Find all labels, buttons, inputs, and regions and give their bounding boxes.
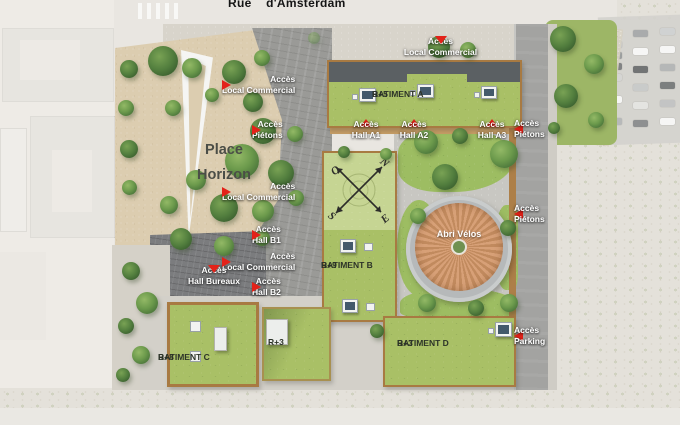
building-b-roof-lawn <box>324 230 395 320</box>
car <box>633 102 648 109</box>
car <box>633 120 648 127</box>
bike-shelter-label: Abri Vélos <box>412 229 506 239</box>
tree <box>550 26 576 52</box>
tree <box>136 292 158 314</box>
compass-east: E <box>378 212 392 226</box>
skylight <box>495 322 512 337</box>
crosswalk <box>138 3 180 19</box>
car <box>660 64 675 71</box>
tree <box>490 140 518 168</box>
tree <box>120 60 138 78</box>
scrub-right <box>548 140 680 390</box>
roof-access-box <box>214 327 227 351</box>
skylight <box>474 92 480 98</box>
tree <box>432 164 458 190</box>
tree <box>588 112 604 128</box>
skylight <box>340 239 356 253</box>
tree <box>165 100 181 116</box>
tree <box>554 84 578 108</box>
car <box>633 84 648 91</box>
skylight <box>366 303 375 311</box>
tree <box>122 262 140 280</box>
tree <box>160 196 178 214</box>
tree <box>338 146 350 158</box>
building-c <box>167 302 259 387</box>
car <box>660 100 675 107</box>
car <box>660 82 675 89</box>
tree <box>584 54 604 74</box>
car <box>660 28 675 35</box>
bike-shelter-center <box>451 239 467 255</box>
building-a-roof-lawn <box>407 74 467 83</box>
tree <box>370 324 384 338</box>
building-a-level: R+5 <box>372 89 388 100</box>
access-arrow-right-icon <box>252 282 261 292</box>
building-b-level: R+9 <box>321 260 337 271</box>
access-arrow-right-icon <box>222 80 231 90</box>
site-plan: O N S E Rue d'Amsterdam Pl <box>0 0 680 425</box>
skylight <box>488 328 494 334</box>
tree <box>252 200 274 222</box>
tree <box>287 126 303 142</box>
building-c-level: R+8 <box>158 352 174 363</box>
access-label-text: Accès Hall A3 <box>478 119 507 140</box>
faded-street-bottom <box>0 408 680 425</box>
access-arrow-down-icon <box>208 265 220 273</box>
tree <box>380 148 392 160</box>
access-label-text: Accès Local Commercial <box>222 181 295 202</box>
compass-west: O <box>329 164 343 178</box>
tree <box>205 88 219 102</box>
access-arrow-right-icon <box>252 230 261 240</box>
tree <box>132 346 150 364</box>
access-label-text: Accès Piétons <box>514 118 545 139</box>
tree <box>170 228 192 250</box>
building-c-roof-lawn <box>170 305 256 384</box>
tree <box>308 32 320 44</box>
tree <box>120 140 138 158</box>
skylight <box>342 299 358 313</box>
car <box>660 118 675 125</box>
tree <box>182 58 202 78</box>
access-label-text: Accès Piétons <box>514 203 545 224</box>
building-d-level: R+3 <box>397 338 413 349</box>
compass-icon: O N S E <box>323 156 395 226</box>
annex-level: R+3 <box>268 337 284 348</box>
east-sidewalk <box>548 24 557 390</box>
building-d <box>383 316 516 387</box>
access-arrow-right-icon <box>252 125 261 135</box>
car <box>633 30 648 37</box>
tree <box>500 294 518 312</box>
tree <box>116 368 130 382</box>
access-label-text: Accès Parking <box>514 325 545 346</box>
skylight <box>481 86 497 99</box>
access-arrow-down-icon <box>435 36 447 44</box>
tree <box>122 180 137 195</box>
compass-south: S <box>326 210 338 223</box>
fade-overlay-left <box>0 0 114 425</box>
tree <box>148 46 178 76</box>
tree <box>548 122 560 134</box>
tree <box>254 50 270 66</box>
skylight <box>364 243 373 251</box>
access-arrow-right-icon <box>222 187 231 197</box>
tree <box>452 128 468 144</box>
tree <box>118 100 134 116</box>
building-a <box>327 60 522 128</box>
car <box>633 48 648 55</box>
car <box>633 66 648 73</box>
tree <box>418 294 436 312</box>
skylight <box>190 321 201 332</box>
tree <box>410 208 426 224</box>
access-label-text: Accès Hall A1 <box>352 119 381 140</box>
skylight <box>352 94 358 100</box>
tree <box>468 300 484 316</box>
access-label-text: Accès Hall A2 <box>400 119 429 140</box>
car <box>660 46 675 53</box>
street-name: Rue d'Amsterdam <box>228 0 346 10</box>
access-label-text: Accès Local Commercial <box>222 74 295 95</box>
tree <box>118 318 134 334</box>
